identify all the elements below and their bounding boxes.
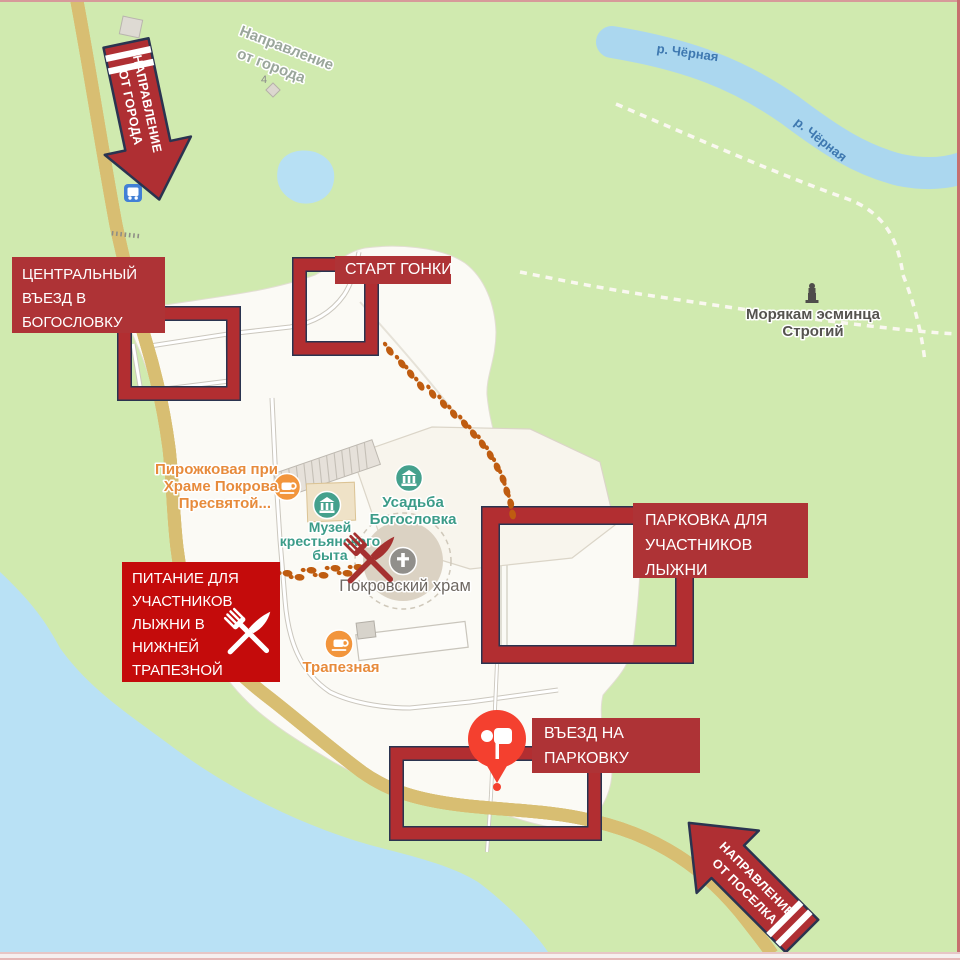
parking-entrance-label: ВЪЕЗД НА ПАРКОВКУ: [532, 718, 700, 773]
building-small: [119, 16, 142, 38]
svg-text:Строгий: Строгий: [782, 323, 843, 340]
label-line: БОГОСЛОВКУ: [22, 311, 155, 335]
museum-icon[interactable]: [314, 492, 341, 519]
svg-text:Усадьба: Усадьба: [382, 494, 444, 511]
building-cube: [356, 621, 376, 639]
label-line: ВЪЕЗД НА: [544, 721, 688, 746]
central-entrance-label: ЦЕНТРАЛЬНЫЙ ВЪЕЗД В БОГОСЛОВКУ: [12, 257, 165, 333]
frame-bottom-strip: [0, 952, 960, 960]
svg-text:Богословка: Богословка: [370, 511, 458, 528]
map-canvas: Направление от города р. Чёрная р. Чёрна…: [0, 0, 960, 952]
parking-label: ПАРКОВКА ДЛЯ УЧАСТНИКОВ ЛЫЖНИ: [633, 503, 808, 578]
label-line: ЦЕНТРАЛЬНЫЙ: [22, 263, 155, 287]
label-line: УЧАСТНИКОВ: [645, 533, 796, 558]
svg-text:Пресвятой...: Пресвятой...: [179, 495, 271, 512]
refectory-label: Трапезная: [302, 659, 379, 676]
church-icon[interactable]: [390, 548, 417, 575]
svg-text:Пирожковая при: Пирожковая при: [155, 461, 278, 478]
label-line: ПАРКОВКУ: [544, 746, 688, 771]
map-slide: Направление от города р. Чёрная р. Чёрна…: [0, 0, 960, 960]
bus-stop-icon[interactable]: [124, 184, 142, 202]
house-number-label: 4: [261, 74, 267, 86]
svg-text:Храме Покрова: Храме Покрова: [164, 478, 279, 495]
label-line: СТАРТ ГОНКИ: [345, 256, 441, 284]
svg-text:быта: быта: [312, 547, 347, 563]
refectory-cafe-icon[interactable]: [325, 630, 353, 658]
food-label: ПИТАНИЕ ДЛЯ УЧАСТНИКОВ ЛЫЖНИ В НИЖНЕЙ ТР…: [122, 562, 280, 682]
label-line: ПИТАНИЕ ДЛЯ: [132, 567, 270, 590]
frame-top-line: [0, 0, 960, 2]
label-line: ЛЫЖНИ: [645, 558, 796, 583]
svg-text:Морякам эсминца: Морякам эсминца: [746, 306, 881, 323]
label-line: ВЪЕЗД В: [22, 287, 155, 311]
fork-knife-icon: [218, 602, 280, 664]
estate-museum-icon[interactable]: [396, 465, 423, 492]
race-start-label: СТАРТ ГОНКИ: [335, 256, 451, 284]
church-label: Покровский храм: [339, 577, 471, 595]
label-line: ПАРКОВКА ДЛЯ: [645, 508, 796, 533]
